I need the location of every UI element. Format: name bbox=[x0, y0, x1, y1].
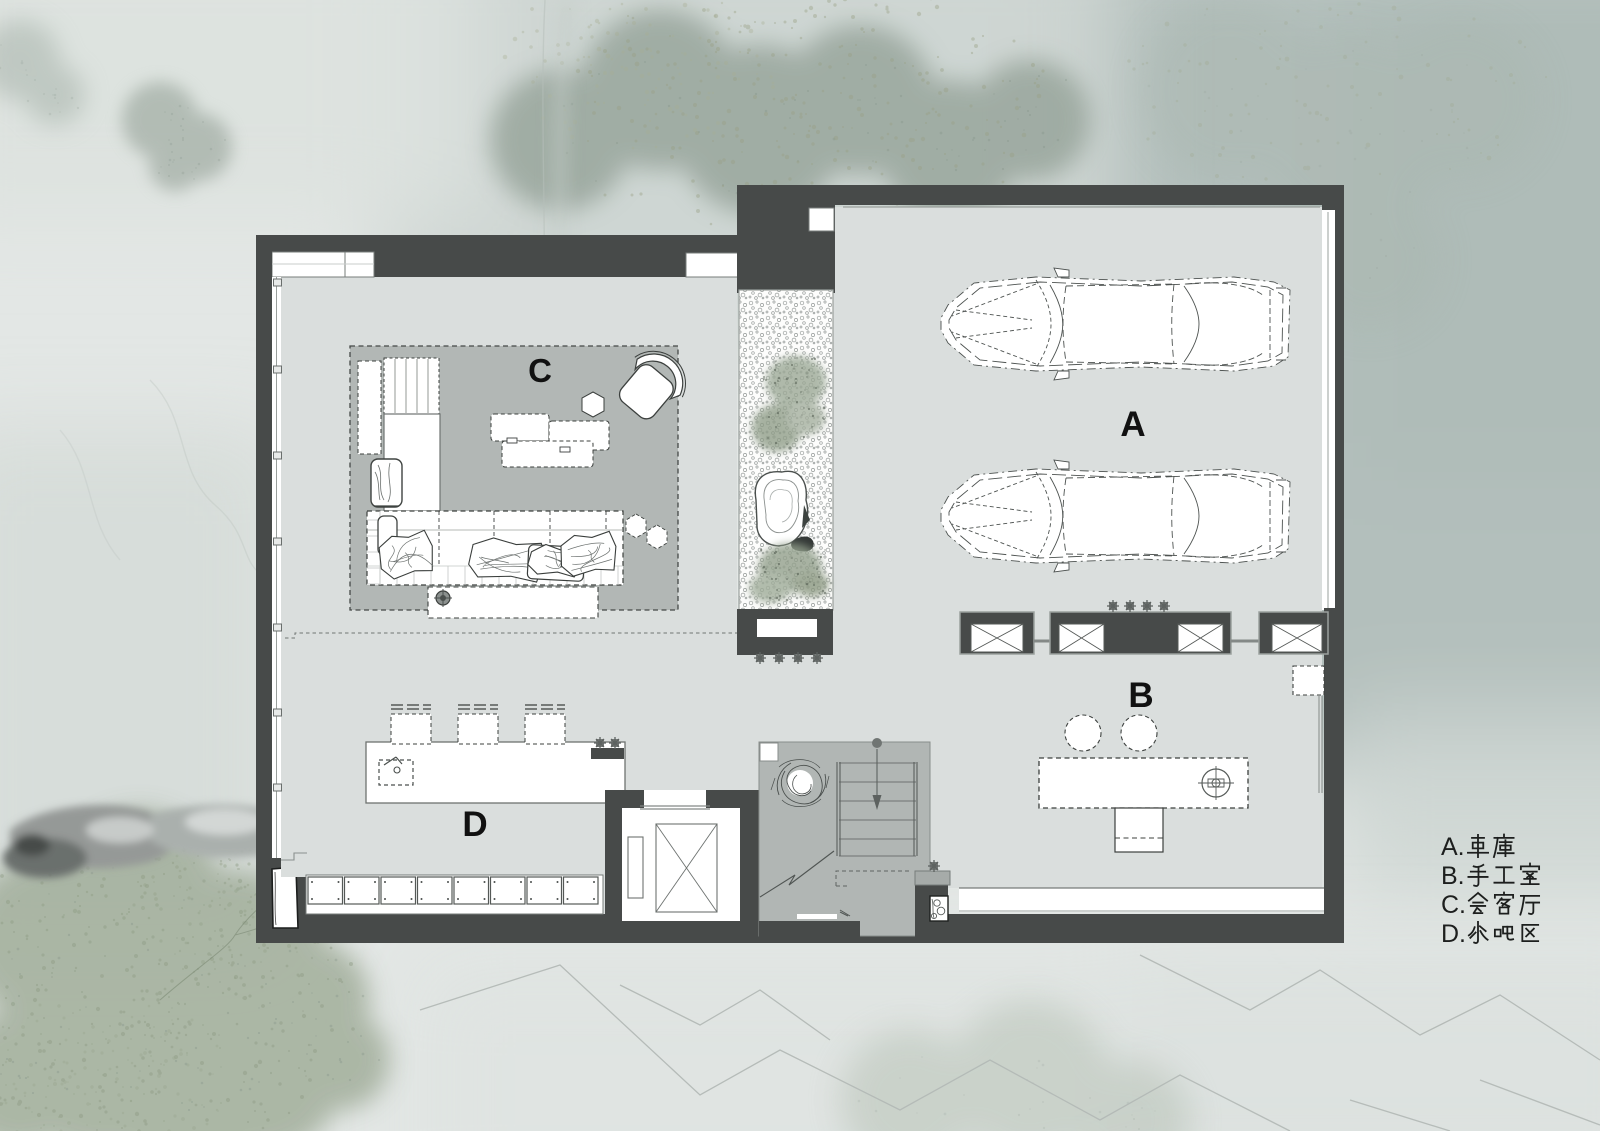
svg-text:D.: D. bbox=[1441, 920, 1466, 948]
svg-text:C.: C. bbox=[1441, 891, 1466, 919]
svg-text:A.: A. bbox=[1441, 833, 1465, 861]
svg-text:B.: B. bbox=[1441, 862, 1465, 890]
svg-text:C: C bbox=[528, 352, 552, 389]
svg-text:D: D bbox=[462, 805, 487, 844]
svg-text:B: B bbox=[1128, 676, 1153, 715]
svg-text:A: A bbox=[1120, 405, 1145, 444]
